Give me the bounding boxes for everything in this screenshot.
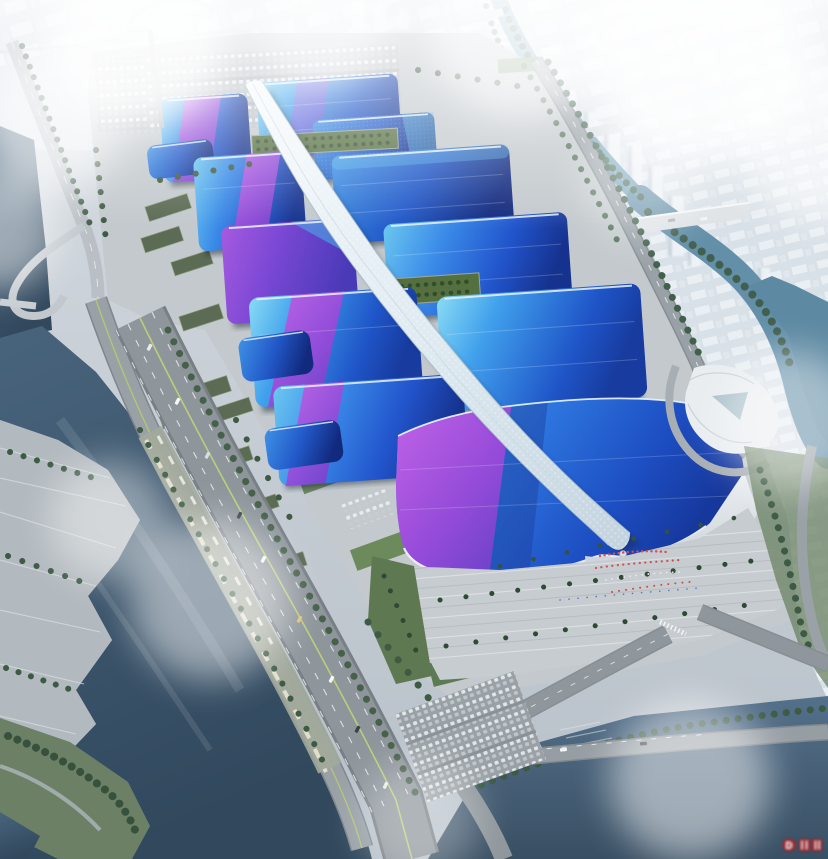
haze-gradient — [0, 0, 828, 230]
watermark-symbol: D — [786, 841, 793, 851]
watermark: D — [783, 839, 823, 852]
aerial-architectural-rendering: D — [0, 0, 828, 859]
west-water-bridge — [0, 302, 36, 306]
scene-canvas: D — [0, 0, 828, 859]
